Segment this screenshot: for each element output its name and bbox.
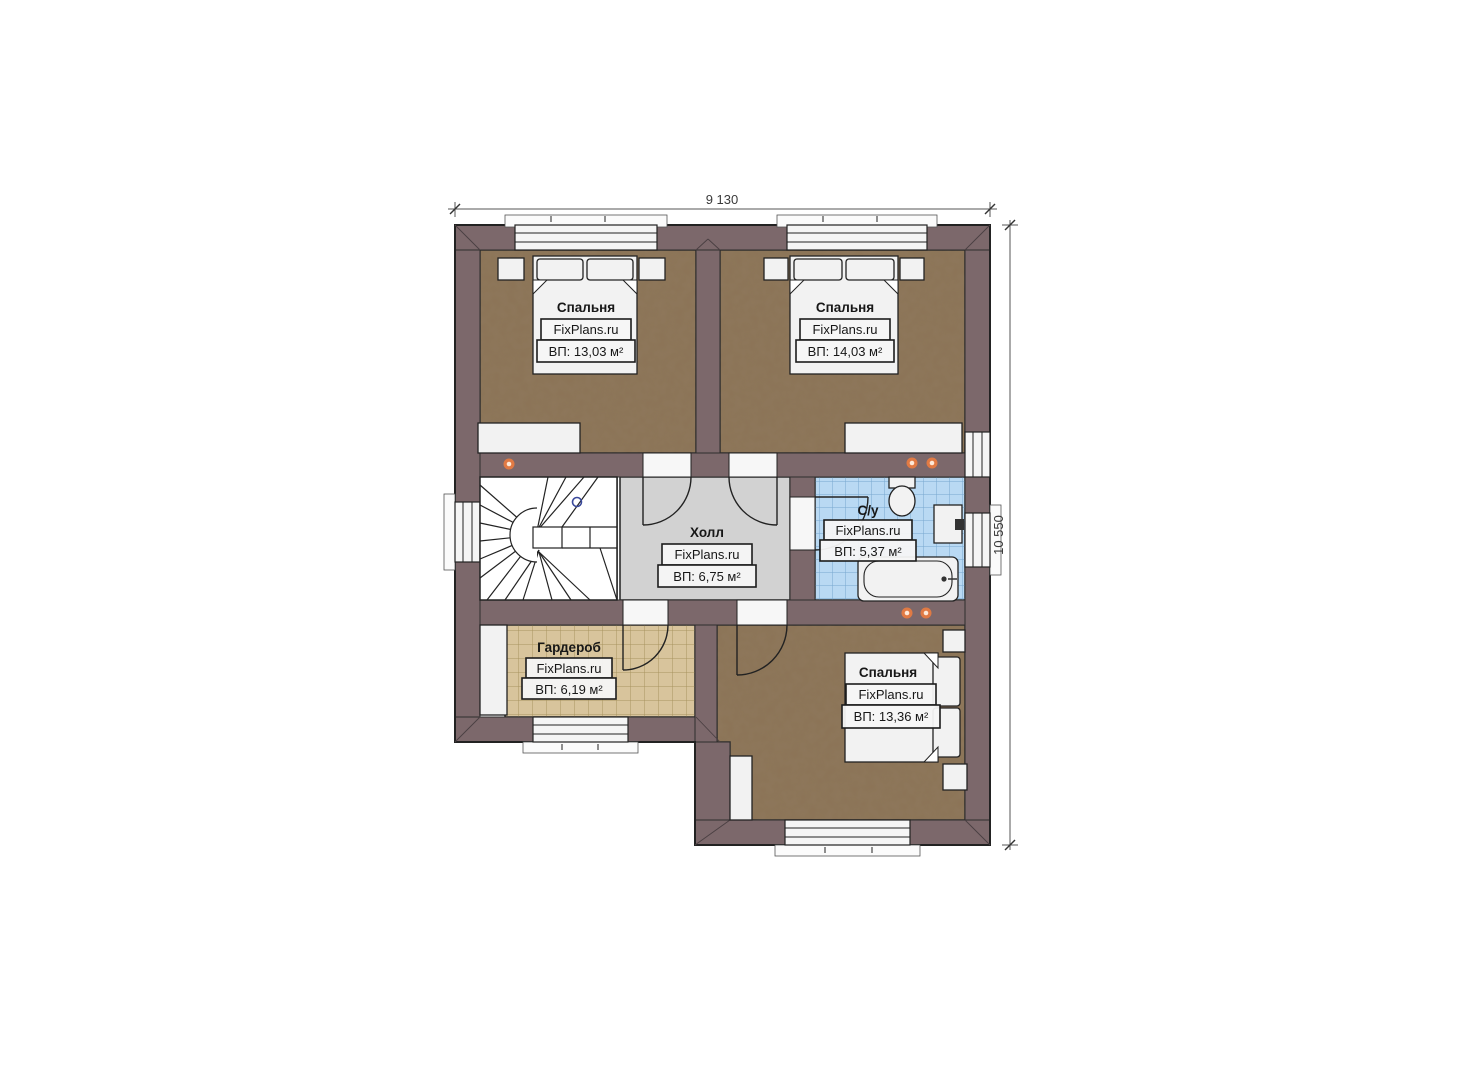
dimension-width-label: 9 130 xyxy=(706,192,739,207)
nightstand-icon xyxy=(900,258,924,280)
watermark: FixPlans.ru xyxy=(536,661,601,676)
room-area: ВП: 5,37 м² xyxy=(834,544,902,559)
nightstand-icon xyxy=(764,258,788,280)
wall-left xyxy=(455,250,480,742)
door-opening-bedroom2 xyxy=(729,453,777,477)
room-name: Спальня xyxy=(816,300,874,315)
wall-light-dot xyxy=(902,608,913,619)
watermark: FixPlans.ru xyxy=(812,322,877,337)
window-stairs-left xyxy=(444,494,480,570)
floor-plan-drawing: Спальня FixPlans.ru ВП: 13,03 м² Спальня… xyxy=(0,0,1473,1080)
window-bedroom1 xyxy=(505,215,667,250)
sink-icon xyxy=(934,505,964,543)
room-name: Спальня xyxy=(859,665,917,680)
wall-light-dot xyxy=(921,608,932,619)
nightstand-icon xyxy=(498,258,524,280)
wall-mid2-a xyxy=(480,600,623,625)
room-name: Холл xyxy=(690,525,724,540)
bathtub-icon xyxy=(858,557,958,601)
door-opening-wardrobe xyxy=(623,600,668,625)
wall-mid2-b xyxy=(668,600,737,625)
room-area: ВП: 13,36 м² xyxy=(854,709,929,724)
dimension-top: 9 130 xyxy=(448,192,997,217)
room-name: Гардероб xyxy=(537,640,601,655)
room-name: С/у xyxy=(857,503,879,518)
watermark: FixPlans.ru xyxy=(553,322,618,337)
wall-mid2-c xyxy=(787,600,965,625)
wall-light-dot xyxy=(927,458,938,469)
ledge-bedroom1 xyxy=(478,423,580,453)
ledge-bedroom3-left xyxy=(730,756,752,820)
room-area: ВП: 6,19 м² xyxy=(535,682,603,697)
pillow-icon xyxy=(587,259,633,280)
window-bedroom2-right xyxy=(965,432,990,477)
wall-light-dot xyxy=(504,459,515,470)
watermark: FixPlans.ru xyxy=(858,687,923,702)
watermark: FixPlans.ru xyxy=(835,523,900,538)
toilet-icon xyxy=(889,477,915,516)
wall-bath-b xyxy=(790,550,815,600)
pillow-icon xyxy=(537,259,583,280)
door-opening-bedroom1 xyxy=(643,453,691,477)
stair-landing xyxy=(533,527,562,548)
door-opening-bedroom3 xyxy=(737,600,787,625)
watermark: FixPlans.ru xyxy=(674,547,739,562)
room-area: ВП: 13,03 м² xyxy=(549,344,624,359)
window-bedroom3 xyxy=(775,820,920,856)
pillow-icon xyxy=(794,259,842,280)
room-area: ВП: 14,03 м² xyxy=(808,344,883,359)
dimension-right: 10 550 xyxy=(991,220,1018,850)
window-wardrobe xyxy=(523,717,638,753)
nightstand-icon xyxy=(943,764,967,790)
room-area: ВП: 6,75 м² xyxy=(673,569,741,584)
wall-light-dot xyxy=(907,458,918,469)
wall-bedroom3-left xyxy=(695,625,717,742)
window-bedroom2 xyxy=(777,215,937,250)
ledge-bedroom2 xyxy=(845,423,962,453)
door-opening-bathroom xyxy=(790,497,815,550)
wall-bath-a xyxy=(790,477,815,497)
nightstand-icon xyxy=(943,630,965,652)
dimension-height-label: 10 550 xyxy=(991,515,1006,555)
room-name: Спальня xyxy=(557,300,615,315)
ledge-wardrobe xyxy=(480,625,507,715)
nightstand-icon xyxy=(639,258,665,280)
wall-mid1-b xyxy=(691,453,729,477)
staircase xyxy=(480,477,617,600)
floor-plan-page: Спальня FixPlans.ru ВП: 13,03 м² Спальня… xyxy=(0,0,1473,1080)
pillow-icon xyxy=(846,259,894,280)
wall-bedroom-divider xyxy=(696,250,720,453)
